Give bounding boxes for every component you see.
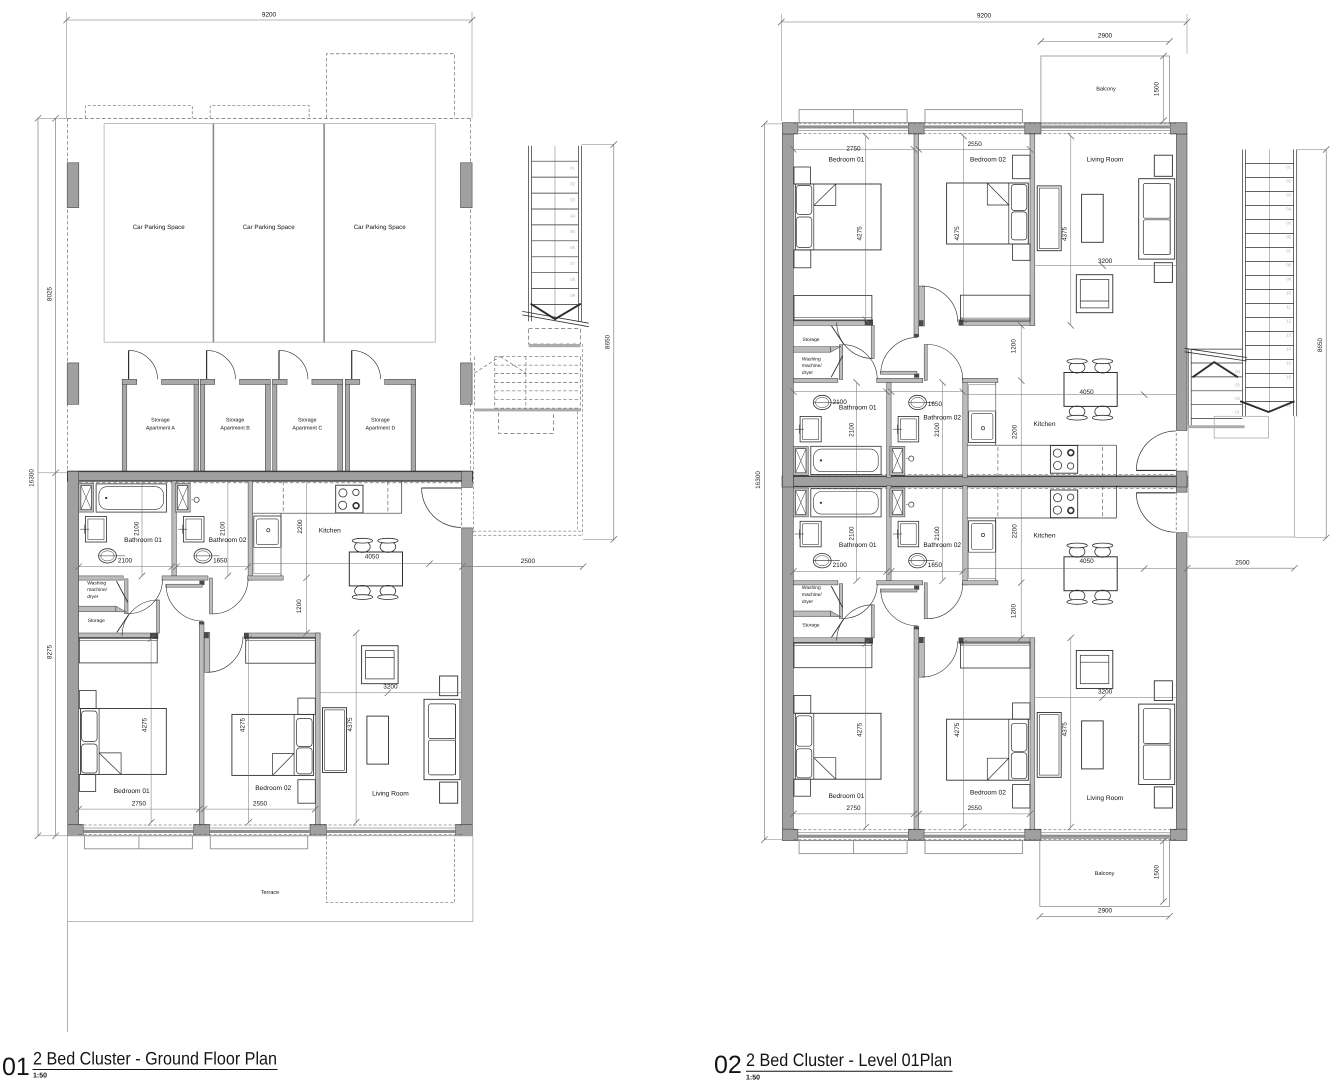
svg-text:2100: 2100	[848, 526, 855, 541]
svg-text:dryer: dryer	[802, 599, 814, 605]
svg-text:12: 12	[1286, 319, 1291, 324]
svg-text:Washing: Washing	[87, 580, 106, 586]
svg-text:Storage: Storage	[88, 618, 105, 624]
svg-text:1650: 1650	[213, 557, 228, 564]
svg-text:1650: 1650	[928, 401, 943, 408]
svg-text:2200: 2200	[1012, 424, 1019, 439]
svg-text:04: 04	[1286, 207, 1291, 212]
svg-text:Apartment D: Apartment D	[366, 426, 396, 432]
svg-text:01: 01	[570, 166, 575, 171]
svg-text:01: 01	[1235, 409, 1240, 414]
svg-text:2100: 2100	[219, 521, 226, 536]
svg-text:machine/: machine/	[802, 592, 822, 598]
svg-text:4275: 4275	[856, 722, 863, 737]
svg-text:Storage: Storage	[802, 623, 819, 629]
svg-text:Kitchen: Kitchen	[1034, 532, 1056, 539]
svg-text:Kitchen: Kitchen	[1034, 421, 1056, 428]
svg-text:1200: 1200	[1011, 339, 1018, 354]
svg-text:8650: 8650	[605, 334, 612, 349]
svg-text:02: 02	[1235, 396, 1240, 401]
svg-text:03: 03	[1286, 193, 1291, 198]
svg-text:Car Parking Space: Car Parking Space	[133, 224, 185, 231]
svg-text:machine/: machine/	[87, 587, 107, 593]
svg-text:1500: 1500	[1154, 81, 1161, 96]
svg-text:2900: 2900	[1098, 908, 1113, 915]
svg-text:Terrace: Terrace	[261, 890, 279, 896]
svg-text:16300: 16300	[755, 471, 762, 489]
svg-text:Storage: Storage	[298, 417, 317, 423]
svg-text:2200: 2200	[1012, 524, 1019, 539]
svg-text:05: 05	[570, 229, 575, 234]
svg-text:dryer: dryer	[87, 594, 99, 600]
svg-text:11: 11	[1286, 305, 1291, 310]
svg-text:2100: 2100	[848, 422, 855, 437]
svg-text:machine/: machine/	[802, 363, 822, 369]
svg-text:3200: 3200	[1098, 258, 1113, 265]
svg-text:8025: 8025	[46, 286, 53, 301]
svg-text:4275: 4275	[239, 717, 246, 732]
svg-text:4275: 4275	[954, 226, 961, 241]
svg-text:2200: 2200	[297, 519, 304, 534]
svg-text:04: 04	[570, 213, 575, 218]
svg-text:Balcony: Balcony	[1096, 87, 1116, 93]
svg-text:Bedroom 01: Bedroom 01	[828, 157, 864, 164]
svg-text:Bedroom 02: Bedroom 02	[970, 157, 1006, 164]
svg-text:06: 06	[570, 245, 575, 250]
svg-text:Living Room: Living Room	[372, 790, 409, 797]
svg-text:9200: 9200	[977, 13, 992, 20]
svg-text:2100: 2100	[934, 422, 941, 437]
svg-text:1200: 1200	[296, 599, 303, 614]
svg-text:Apartment C: Apartment C	[292, 426, 322, 432]
svg-text:01: 01	[1286, 165, 1291, 170]
svg-text:16: 16	[1286, 375, 1291, 380]
svg-text:2500: 2500	[521, 558, 536, 565]
svg-text:2750: 2750	[132, 800, 147, 807]
svg-text:03: 03	[1235, 382, 1240, 387]
svg-text:4050: 4050	[365, 553, 380, 560]
svg-text:Living Room: Living Room	[1087, 157, 1124, 164]
svg-text:4050: 4050	[1079, 389, 1094, 396]
svg-text:Washing: Washing	[802, 585, 821, 591]
svg-text:4275: 4275	[856, 226, 863, 241]
svg-text:07: 07	[1286, 249, 1291, 254]
svg-text:2 Bed Cluster - Level 01Plan: 2 Bed Cluster - Level 01Plan	[746, 1050, 952, 1070]
svg-text:2750: 2750	[846, 805, 861, 812]
svg-text:4275: 4275	[954, 722, 961, 737]
svg-text:1:50: 1:50	[33, 1073, 47, 1080]
svg-text:10: 10	[1286, 291, 1291, 296]
svg-text:08: 08	[1286, 263, 1291, 268]
svg-text:9200: 9200	[262, 12, 277, 19]
svg-text:2900: 2900	[1098, 33, 1113, 40]
svg-text:05: 05	[1286, 221, 1291, 226]
svg-text:15: 15	[1286, 361, 1291, 366]
svg-text:3200: 3200	[1098, 688, 1113, 695]
svg-text:Storage: Storage	[802, 337, 819, 343]
svg-text:02: 02	[1286, 179, 1291, 184]
svg-text:3200: 3200	[383, 684, 398, 691]
svg-text:2550: 2550	[968, 141, 983, 148]
svg-text:Bathroom 02: Bathroom 02	[209, 537, 247, 544]
svg-text:Bedroom 02: Bedroom 02	[970, 790, 1006, 797]
svg-text:2100: 2100	[833, 399, 848, 406]
svg-text:Balcony: Balcony	[1095, 871, 1115, 877]
svg-text:09: 09	[570, 293, 575, 298]
svg-text:Bathroom 02: Bathroom 02	[923, 415, 961, 422]
svg-text:Bathroom 01: Bathroom 01	[839, 542, 877, 549]
svg-text:Bathroom 01: Bathroom 01	[124, 537, 162, 544]
svg-text:Apartment B: Apartment B	[220, 426, 250, 432]
svg-text:Car Parking Space: Car Parking Space	[243, 224, 295, 231]
svg-text:2750: 2750	[846, 146, 861, 153]
svg-text:4375: 4375	[347, 717, 354, 732]
svg-text:4375: 4375	[1062, 722, 1069, 737]
svg-text:02: 02	[714, 1051, 742, 1079]
svg-text:04: 04	[1235, 369, 1240, 374]
svg-text:16300: 16300	[29, 469, 36, 487]
svg-text:Kitchen: Kitchen	[319, 528, 341, 535]
svg-text:1500: 1500	[1153, 864, 1160, 879]
svg-text:2500: 2500	[1235, 560, 1250, 567]
svg-text:dryer: dryer	[802, 370, 814, 376]
svg-text:Storage: Storage	[151, 417, 170, 423]
svg-text:13: 13	[1286, 333, 1291, 338]
svg-text:2100: 2100	[134, 521, 141, 536]
svg-text:09: 09	[1286, 277, 1291, 282]
svg-text:Bedroom 02: Bedroom 02	[255, 785, 291, 792]
svg-text:Living Room: Living Room	[1087, 795, 1124, 802]
svg-text:Bedroom 01: Bedroom 01	[114, 788, 150, 795]
svg-text:4275: 4275	[142, 717, 149, 732]
svg-text:8275: 8275	[46, 644, 53, 659]
svg-text:Apartment A: Apartment A	[146, 426, 176, 432]
svg-text:1:50: 1:50	[746, 1075, 760, 1082]
svg-text:01: 01	[2, 1053, 30, 1081]
svg-text:Storage: Storage	[371, 417, 390, 423]
svg-text:06: 06	[1286, 235, 1291, 240]
svg-text:08: 08	[570, 277, 575, 282]
svg-text:Bedroom 01: Bedroom 01	[828, 793, 864, 800]
svg-text:2100: 2100	[833, 562, 848, 569]
svg-text:Bathroom 02: Bathroom 02	[923, 542, 961, 549]
svg-text:Washing: Washing	[802, 356, 821, 362]
svg-text:02: 02	[570, 181, 575, 186]
svg-text:1200: 1200	[1011, 604, 1018, 619]
svg-text:2 Bed Cluster - Ground Floor P: 2 Bed Cluster - Ground Floor Plan	[33, 1049, 277, 1069]
svg-text:03: 03	[570, 197, 575, 202]
svg-text:2100: 2100	[934, 526, 941, 541]
svg-text:8650: 8650	[1317, 337, 1324, 352]
svg-text:Car Parking Space: Car Parking Space	[354, 224, 406, 231]
svg-text:2550: 2550	[253, 800, 268, 807]
svg-text:Storage: Storage	[226, 417, 245, 423]
svg-text:4050: 4050	[1079, 558, 1094, 565]
svg-text:4375: 4375	[1062, 226, 1069, 241]
svg-text:14: 14	[1286, 347, 1291, 352]
svg-text:07: 07	[570, 261, 575, 266]
svg-text:2550: 2550	[968, 805, 983, 812]
svg-text:1650: 1650	[928, 562, 943, 569]
svg-text:2100: 2100	[118, 557, 133, 564]
